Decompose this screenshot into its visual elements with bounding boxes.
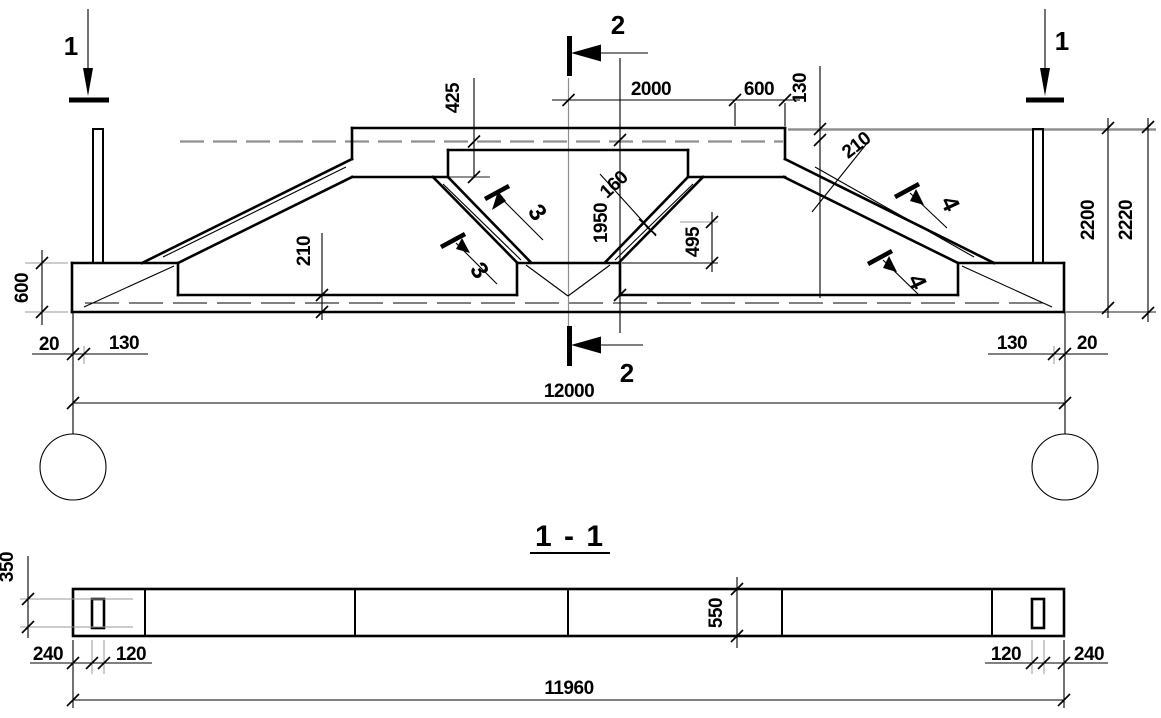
elevation-dimensions: 2000 600 130 425 160 495 1950 210 210 22… xyxy=(12,73,1137,402)
dim-240-left: 240 xyxy=(33,644,63,665)
dim-350: 350 xyxy=(0,552,18,582)
dim-2000: 2000 xyxy=(631,79,671,100)
dim-20-right: 20 xyxy=(1077,333,1097,354)
grid-bubbles xyxy=(40,434,1098,500)
right-post-section xyxy=(1032,599,1044,628)
down-arrow-icon xyxy=(83,68,93,96)
section-marker-3-upper: 3 xyxy=(485,186,552,240)
right-post xyxy=(1033,129,1043,263)
dim-120-left: 120 xyxy=(116,644,146,665)
dim-210-diagonal: 210 xyxy=(838,128,875,163)
section-title-group: 1 - 1 xyxy=(531,520,609,553)
left-arrow-icon xyxy=(571,45,601,62)
dim-2220: 2220 xyxy=(1116,200,1137,240)
section-dimensions: 350 240 120 550 120 240 11960 xyxy=(0,552,1104,699)
dim-240-right: 240 xyxy=(1074,644,1104,665)
dim-11960: 11960 xyxy=(544,678,593,699)
section-1-right-label: 1 xyxy=(1055,26,1069,56)
section-2-top-label: 2 xyxy=(611,10,625,40)
section-marker-2-top: 2 xyxy=(570,10,649,76)
dim-2200: 2200 xyxy=(1078,200,1099,240)
section-marker-1-left: 1 xyxy=(64,9,109,100)
grid-bubble-left xyxy=(40,434,106,500)
grid-bubble-right xyxy=(1032,434,1098,500)
dim-425: 425 xyxy=(443,82,464,113)
left-post xyxy=(93,129,103,263)
left-post-section xyxy=(92,599,104,628)
dim-210-chord: 210 xyxy=(294,236,315,266)
elevation-view: 1 1 2 2 3 xyxy=(12,9,1156,500)
section-marker-4-upper: 4 xyxy=(895,184,965,228)
truss-engineering-drawing: 1 1 2 2 3 xyxy=(0,0,1161,718)
cut-arrow-icon xyxy=(883,256,897,272)
dim-1950: 1950 xyxy=(591,203,612,243)
section-marker-1-right: 1 xyxy=(1026,9,1069,100)
dim-600-top: 600 xyxy=(744,79,774,100)
section-body xyxy=(73,589,1064,636)
cut-arrow-icon xyxy=(910,189,924,205)
section-3-upper-label: 3 xyxy=(522,199,552,225)
dim-130-left: 130 xyxy=(109,333,139,354)
dimension-lines xyxy=(32,58,1148,434)
section-1-left-label: 1 xyxy=(64,31,78,61)
section-title: 1 - 1 xyxy=(535,520,605,553)
dim-600-left: 600 xyxy=(12,273,33,303)
section-4-lower-label: 4 xyxy=(902,270,932,294)
dim-495: 495 xyxy=(683,226,704,257)
dim-20-left: 20 xyxy=(39,334,59,355)
dim-160: 160 xyxy=(596,167,632,203)
left-arrow-icon xyxy=(571,337,601,354)
section-2-bottom-label: 2 xyxy=(620,358,634,388)
dim-12000: 12000 xyxy=(544,381,594,402)
dim-550: 550 xyxy=(706,598,727,628)
dim-130-top: 130 xyxy=(790,73,811,103)
section-4-upper-label: 4 xyxy=(935,192,965,216)
section-marker-3-lower: 3 xyxy=(441,234,497,284)
down-arrow-icon xyxy=(1040,68,1050,96)
section-1-1-view: 1 - 1 xyxy=(0,520,1108,708)
dim-130-right: 130 xyxy=(997,333,1027,354)
section-marker-2-bottom: 2 xyxy=(570,326,644,388)
drawing-sheet: 1 1 2 2 3 xyxy=(0,0,1161,718)
dim-120-right: 120 xyxy=(991,644,1021,665)
section-3-lower-label: 3 xyxy=(464,257,494,283)
section-marker-4-lower: 4 xyxy=(868,251,932,294)
